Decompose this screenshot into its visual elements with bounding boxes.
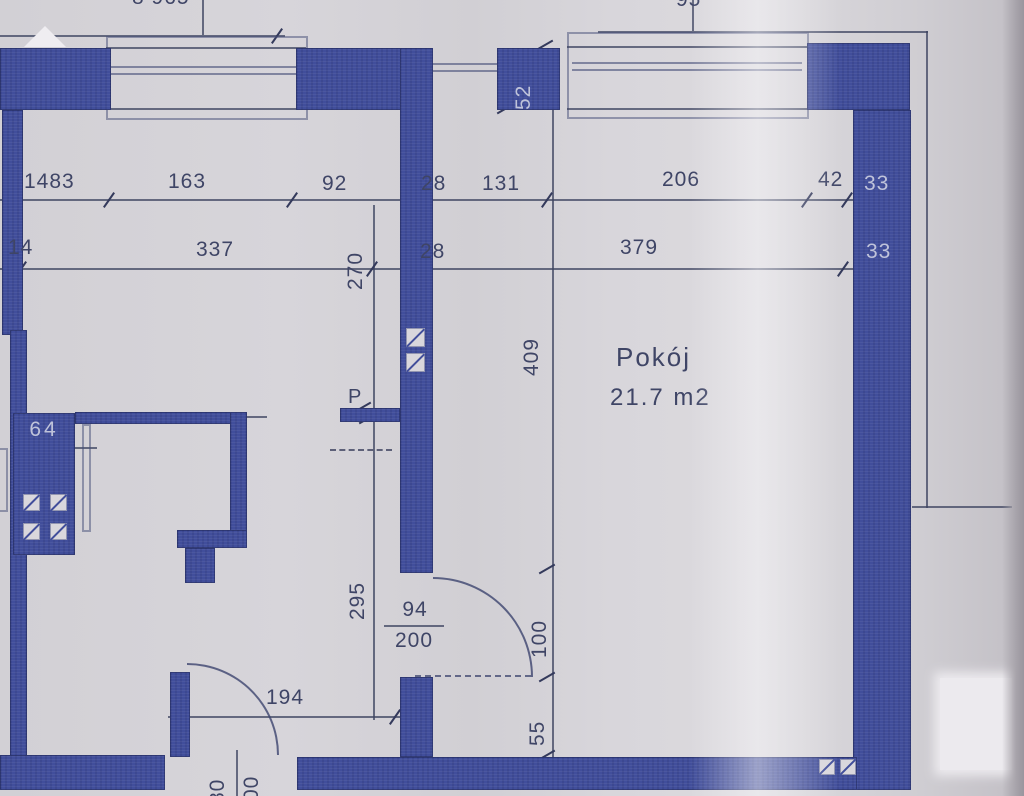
window-face-line (567, 108, 807, 110)
dim-label: 28 (421, 172, 446, 196)
room-name: Pokój (616, 342, 691, 373)
wall-right (853, 110, 911, 790)
dim-vline-left (373, 205, 375, 720)
door-fraction-bar (384, 625, 444, 627)
door-height-label: 200 (388, 629, 440, 653)
facade-line-bottom (912, 506, 1012, 508)
scan-edge-shadow (1002, 0, 1024, 796)
wall-top-right (807, 43, 910, 110)
dim-label: 14 (8, 236, 33, 260)
dim-label-clipped-right: 95 (676, 0, 701, 12)
dim-label: 379 (620, 236, 658, 260)
window-glazing-gap (433, 63, 497, 72)
top-ext-line-left (202, 0, 204, 35)
vent-hatch-icon (840, 759, 856, 775)
window-face-line (567, 46, 807, 48)
dim-row1-line (0, 199, 908, 201)
wall-bottom-left (0, 755, 165, 790)
dim-label-pier: 52 (512, 50, 536, 110)
small-room-right-wall (230, 412, 247, 548)
window-face-line (106, 47, 306, 49)
scan-light-band (690, 0, 840, 796)
dim-label: 163 (168, 170, 206, 194)
dim-label-on-wall: 33 (864, 172, 889, 196)
small-room-bottom-wall (177, 530, 247, 548)
duct-label: 64 (22, 418, 66, 442)
p-mark: P (348, 386, 362, 409)
vent-hatch-icon (406, 328, 425, 347)
room-area: 21.7 m2 (610, 384, 711, 412)
door-width-clipped: 80 (206, 764, 230, 796)
small-tick-line-b (247, 416, 267, 418)
vent-hatch-icon (819, 759, 835, 775)
dim-label: 295 (346, 556, 370, 620)
door-leaf-main (415, 675, 531, 677)
wall-interior-stub (340, 408, 400, 422)
door-fraction-bar-vertical (236, 750, 238, 796)
dim-label-clipped-left: 8 965 (132, 0, 190, 10)
dim-dash-segment (330, 449, 392, 451)
window-glazing-right (572, 62, 802, 71)
dim-label: 409 (520, 308, 544, 376)
window-face-line (106, 108, 306, 110)
scan-white-patch (940, 678, 1012, 770)
small-room-top-wall (75, 412, 247, 424)
vent-hatch-icon (406, 353, 425, 372)
small-room-step-wall (185, 548, 215, 583)
wall-top-left (0, 48, 111, 110)
floor-plan-scan: 8 965 95 (0, 0, 1024, 796)
vent-hatch-icon (50, 494, 67, 511)
dim-label: 131 (482, 172, 520, 196)
dim-label: 55 (526, 696, 550, 746)
door-height-clipped: 00 (240, 761, 264, 796)
window-glazing-left (111, 66, 296, 75)
door-width-label: 94 (392, 598, 438, 622)
dim-label: 28 (420, 240, 445, 264)
facade-line-right (926, 31, 928, 508)
dim-label: 42 (818, 168, 843, 192)
dim-label-on-wall: 33 (866, 240, 891, 264)
wall-left-upper (2, 110, 23, 335)
vent-hatch-icon (23, 523, 40, 540)
dim-row2-line (0, 268, 908, 270)
opening-width-label: 194 (266, 686, 304, 710)
dim-label: 92 (322, 172, 347, 196)
wall-bottom-main (297, 757, 857, 790)
dim-label: 206 (662, 168, 700, 192)
edge-cut-outline (0, 448, 8, 512)
vent-hatch-icon (50, 523, 67, 540)
wall-interior-vertical-upper (400, 48, 433, 573)
dim-label: 100 (528, 600, 552, 658)
door-swing-arc-main (433, 577, 533, 677)
dim-label: 270 (344, 226, 368, 290)
wall-interior-vertical-lower (400, 677, 433, 757)
dim-label: 337 (196, 238, 234, 262)
vent-hatch-icon (23, 494, 40, 511)
small-room-thin-partition (82, 424, 91, 532)
dim-vline-center (552, 107, 554, 757)
dim-label: 1483 (24, 170, 75, 194)
